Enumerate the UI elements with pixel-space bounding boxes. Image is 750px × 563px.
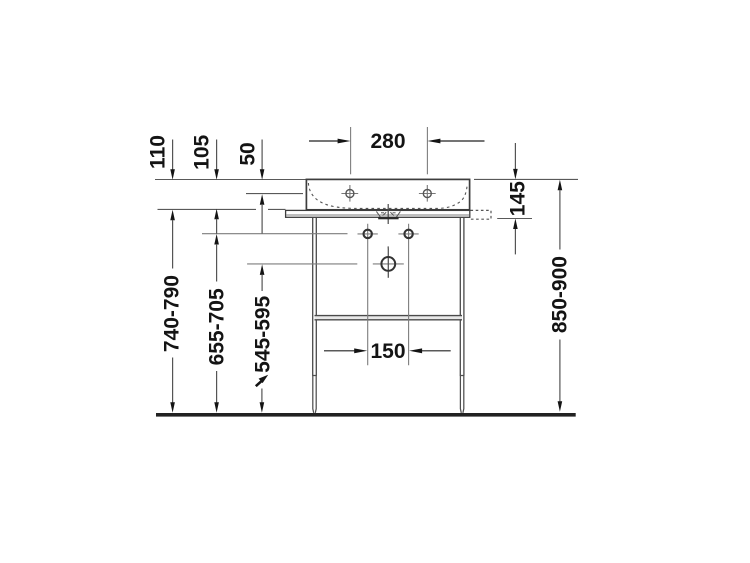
svg-text:145: 145 [507, 181, 530, 216]
svg-text:545-595: 545-595 [252, 295, 275, 372]
svg-text:740-790: 740-790 [160, 275, 183, 352]
svg-text:655-705: 655-705 [205, 288, 228, 365]
svg-text:110: 110 [147, 135, 170, 169]
svg-text:50: 50 [237, 142, 260, 165]
svg-text:280: 280 [370, 130, 405, 153]
svg-text:105: 105 [191, 134, 214, 169]
svg-text:850-900: 850-900 [549, 256, 572, 333]
svg-text:150: 150 [370, 340, 405, 363]
